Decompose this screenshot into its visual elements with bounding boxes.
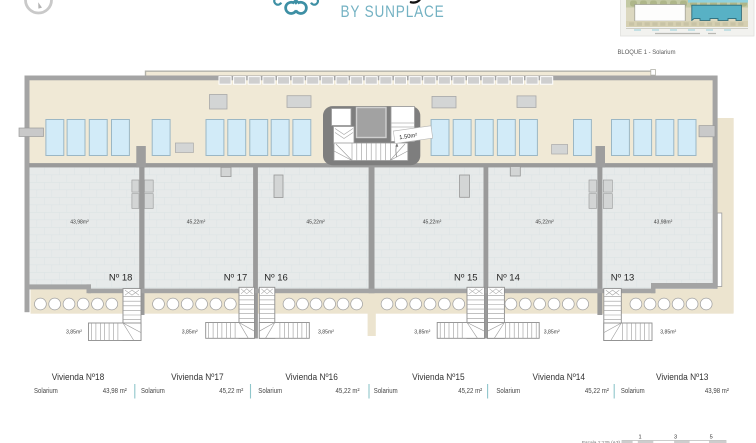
- svg-text:3,85m²: 3,85m²: [544, 329, 560, 335]
- svg-text:Vivienda Nº17: Vivienda Nº17: [171, 372, 224, 382]
- svg-text:45,22m²: 45,22m²: [306, 220, 325, 226]
- svg-text:Vivienda Nº13: Vivienda Nº13: [656, 372, 709, 382]
- svg-text:Vivienda Nº15: Vivienda Nº15: [412, 372, 465, 382]
- svg-text:3,85m²: 3,85m²: [318, 329, 334, 335]
- svg-text:45,22m²: 45,22m²: [187, 220, 206, 226]
- svg-text:43,98 m²: 43,98 m²: [103, 388, 128, 395]
- svg-text:3: 3: [674, 435, 677, 441]
- svg-text:45,22m²: 45,22m²: [423, 220, 442, 226]
- svg-text:Nº 18: Nº 18: [109, 273, 133, 283]
- svg-text:3,85m²: 3,85m²: [414, 329, 430, 335]
- svg-text:3,85m²: 3,85m²: [660, 329, 676, 335]
- svg-text:45,22 m²: 45,22 m²: [458, 388, 483, 395]
- svg-text:Solarium: Solarium: [141, 388, 165, 395]
- svg-text:Vivienda Nº14: Vivienda Nº14: [533, 372, 586, 382]
- svg-text:45,22 m²: 45,22 m²: [219, 388, 244, 395]
- svg-text:Nº 15: Nº 15: [454, 273, 478, 283]
- svg-text:Solarium: Solarium: [621, 388, 645, 395]
- svg-text:Nº 16: Nº 16: [264, 273, 288, 283]
- svg-text:Vivienda Nº16: Vivienda Nº16: [285, 372, 338, 382]
- svg-text:Solarium: Solarium: [496, 388, 520, 395]
- svg-text:3,85m²: 3,85m²: [66, 329, 82, 335]
- svg-text:Nº 17: Nº 17: [224, 273, 248, 283]
- svg-text:3,85m²: 3,85m²: [182, 329, 198, 335]
- svg-text:Nº 13: Nº 13: [611, 273, 635, 283]
- svg-text:43,98m²: 43,98m²: [70, 220, 89, 226]
- svg-text:45,22 m²: 45,22 m²: [585, 388, 610, 395]
- svg-text:43,98m²: 43,98m²: [654, 220, 673, 226]
- svg-text:BLOQUE 1 - Solarium: BLOQUE 1 - Solarium: [618, 50, 676, 56]
- svg-text:Vivienda Nº18: Vivienda Nº18: [52, 372, 105, 382]
- svg-text:45,22m²: 45,22m²: [535, 220, 554, 226]
- svg-text:Solarium: Solarium: [34, 388, 58, 395]
- svg-text:Solarium: Solarium: [374, 388, 398, 395]
- svg-text:BY SUNPLACE: BY SUNPLACE: [341, 3, 445, 21]
- svg-text:43,98 m²: 43,98 m²: [705, 388, 730, 395]
- svg-text:1: 1: [638, 435, 641, 441]
- svg-text:5: 5: [710, 435, 713, 441]
- svg-text:Nº 14: Nº 14: [496, 273, 520, 283]
- svg-text:45,22 m²: 45,22 m²: [336, 388, 361, 395]
- svg-text:Solarium: Solarium: [258, 388, 282, 395]
